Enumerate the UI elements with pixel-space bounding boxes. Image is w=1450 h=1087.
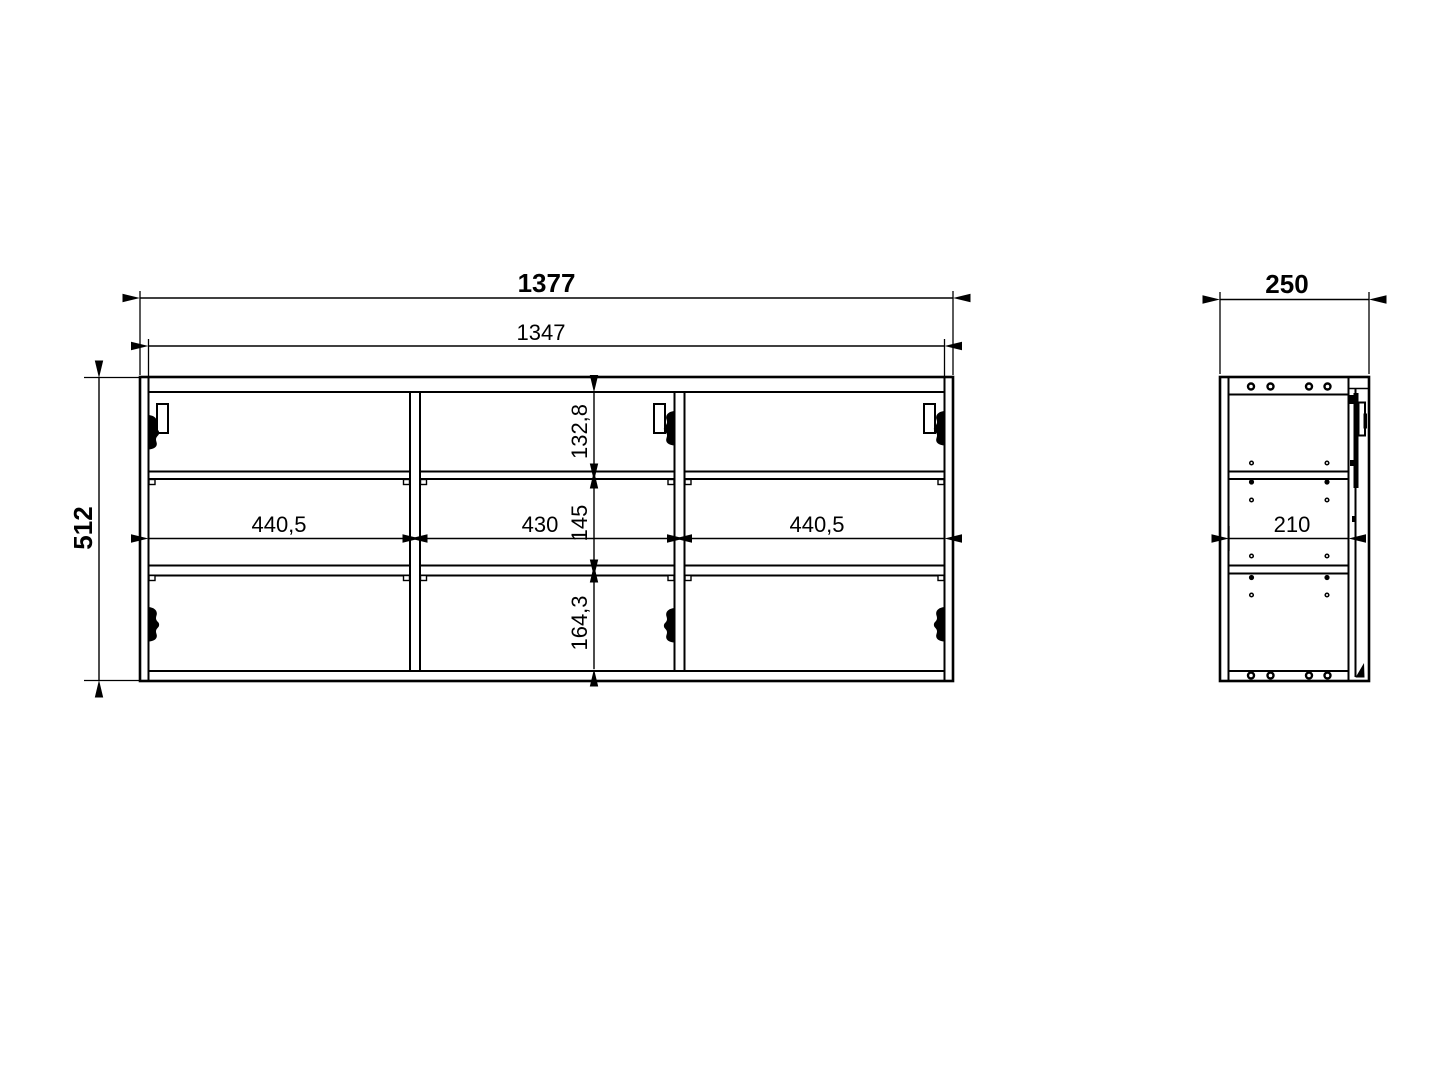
pin-hole <box>1325 554 1329 558</box>
pin-hole <box>1325 461 1329 465</box>
dim-label-left-section: 440,5 <box>251 512 306 537</box>
hinge-mark <box>1350 460 1355 466</box>
shelf-pin <box>1324 575 1329 580</box>
hinge-cup-icon <box>664 608 675 643</box>
shelf-pin <box>938 576 944 581</box>
pin-hole <box>1325 593 1329 597</box>
dim-overall-height: 512 <box>68 378 139 681</box>
dim-top-section-height: 132,8 <box>567 393 594 472</box>
dim-right-section: 440,5 <box>685 512 945 539</box>
pin-hole <box>1250 593 1254 597</box>
shelf-pin <box>938 480 944 485</box>
hinge-nub-icon <box>1364 414 1368 429</box>
shelf-pin <box>1249 479 1254 484</box>
shelf-pin <box>421 576 427 581</box>
hinge-cup-icon <box>149 607 160 642</box>
dim-label-overall-height: 512 <box>68 506 98 549</box>
drawing-canvas: 1377 1347 512 440,5 430 440 <box>0 0 1450 1087</box>
shelf-pin <box>668 480 674 485</box>
pin-hole <box>1250 498 1254 502</box>
dim-inner-depth: 210 <box>1229 512 1349 551</box>
dim-overall-depth: 250 <box>1220 269 1369 374</box>
dim-label-right-section: 440,5 <box>789 512 844 537</box>
side-hinge-hardware <box>1350 393 1368 678</box>
pin-hole <box>1325 498 1329 502</box>
hinge-mark <box>1352 516 1356 522</box>
hinge-cup-icon <box>934 607 945 642</box>
screw-icon <box>1268 673 1274 679</box>
shelf-pin <box>421 480 427 485</box>
shelf-pin <box>404 576 410 581</box>
shelf-pin <box>685 576 691 581</box>
dim-label-overall-depth: 250 <box>1265 269 1308 299</box>
screw-icon <box>1325 673 1331 679</box>
shelf-1 <box>149 472 945 480</box>
dim-label-middle-section-height: 145 <box>567 505 592 542</box>
door-bottom-wedge-mark <box>1356 663 1365 678</box>
shelf-pin <box>668 576 674 581</box>
dim-bottom-section-height: 164,3 <box>567 577 594 669</box>
shelf-2 <box>149 566 945 576</box>
shelf-pin <box>149 480 155 485</box>
screw-icon <box>1325 384 1331 390</box>
hinge-plate-icon <box>157 404 168 433</box>
shelf-pin <box>1249 575 1254 580</box>
shelf-pin <box>149 576 155 581</box>
screw-icon <box>1306 384 1312 390</box>
shelf-pin <box>404 480 410 485</box>
dim-label-overall-width: 1377 <box>518 268 576 298</box>
hinge-plate-icon <box>924 404 935 433</box>
hinge-plate-icon <box>654 404 665 433</box>
dim-middle-section-height: 145 <box>567 481 594 565</box>
dim-label-middle-section: 430 <box>522 512 559 537</box>
dim-label-inner-depth: 210 <box>1274 512 1311 537</box>
screw-icon <box>1248 384 1254 390</box>
shelf-pin <box>685 480 691 485</box>
dim-middle-section: 430 <box>420 512 675 539</box>
side-view: 250 210 <box>1220 269 1369 681</box>
dim-label-top-section-height: 132,8 <box>567 404 592 459</box>
screw-icon <box>1248 673 1254 679</box>
dim-inner-width: 1347 <box>149 320 945 376</box>
technical-drawing: 1377 1347 512 440,5 430 440 <box>0 0 1450 1087</box>
screw-icon <box>1306 673 1312 679</box>
pin-hole <box>1250 554 1254 558</box>
hinge-mark <box>1355 474 1359 480</box>
hinge-nub-icon <box>1350 395 1354 404</box>
pin-hole <box>1250 461 1254 465</box>
screw-icon <box>1268 384 1274 390</box>
shelf-pin <box>1324 479 1329 484</box>
dim-label-inner-width: 1347 <box>517 320 566 345</box>
front-view: 1377 1347 512 440,5 430 440 <box>68 268 953 681</box>
dim-left-section: 440,5 <box>149 512 411 539</box>
dim-label-bottom-section-height: 164,3 <box>567 595 592 650</box>
